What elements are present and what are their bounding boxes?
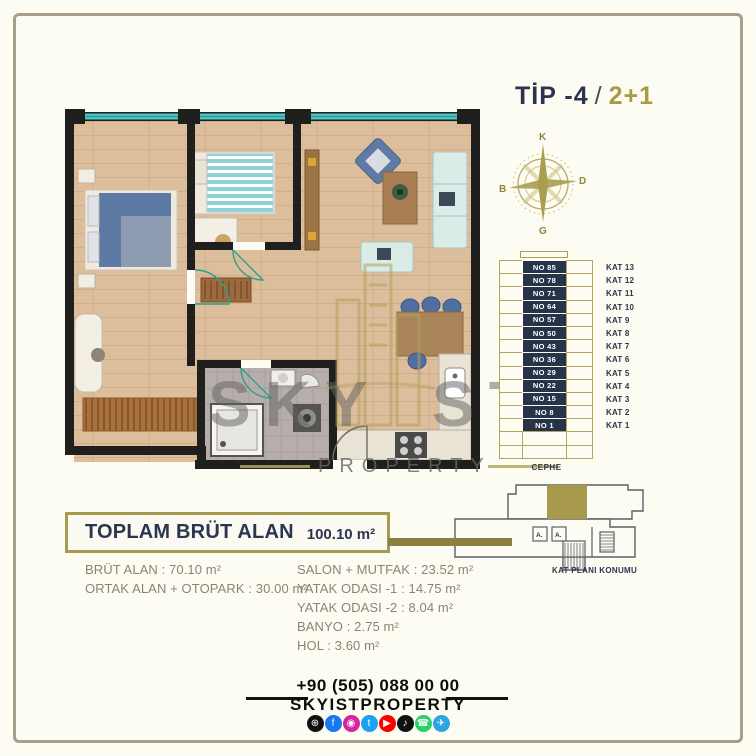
stack-cell-left (499, 405, 523, 419)
unit-type-title: TİP -4/2+1 (515, 82, 654, 111)
sink (445, 368, 465, 398)
floor-level-label: KAT 4 (606, 380, 651, 393)
stack-cell-right (566, 418, 593, 432)
floor-level-label: KAT 13 (606, 261, 651, 274)
stack-cell-left (499, 326, 523, 340)
stack-cell-left (499, 392, 523, 406)
building-stack-rows: NO 85 KAT 13 NO 78 KAT 12 NO 71 KAT 11 (499, 261, 594, 432)
flat-number-badge: NO 29 (522, 366, 567, 380)
stack-cell-right (566, 313, 593, 327)
stack-cell-left (499, 418, 523, 432)
twitter-icon: t (361, 715, 378, 732)
nightstand (78, 274, 95, 288)
chair (422, 297, 440, 313)
stack-cell-right (566, 405, 593, 419)
floor-location-plan: A. A. (452, 478, 647, 572)
area-line: YATAK ODASI -1 : 14.75 m² (297, 579, 473, 598)
flat-number-badge: NO 43 (522, 339, 567, 353)
stack-cell-left (499, 352, 523, 366)
title-separator: / (595, 82, 603, 110)
compass-south-label: G (539, 226, 547, 236)
floor-plan (65, 108, 480, 478)
floor-level-label: KAT 12 (606, 274, 651, 287)
stack-cell-left (499, 300, 523, 314)
building-roof-cap (520, 251, 568, 258)
stool (91, 348, 105, 362)
stack-cell-left (499, 379, 523, 393)
flat-number-badge: NO 22 (522, 379, 567, 393)
nightstand (78, 169, 95, 183)
stack-cell-right (566, 300, 593, 314)
tiktok-icon: ♪ (397, 715, 414, 732)
chair (408, 353, 426, 369)
compass-rose-icon: K D B G (497, 128, 589, 236)
floor-level-label: KAT 10 (606, 301, 651, 314)
whatsapp-icon: ☎ (415, 715, 432, 732)
pillow (194, 160, 207, 184)
building-stack: NO 85 KAT 13 NO 78 KAT 12 NO 71 KAT 11 (499, 251, 649, 459)
floor-level-label: KAT 11 (606, 287, 651, 300)
compass-east-label: D (579, 176, 586, 187)
gross-area-title: TOPLAM BRÜT ALAN (85, 521, 294, 544)
flat-number-badge: NO 50 (522, 326, 567, 340)
instagram-icon: ◉ (343, 715, 360, 732)
compass-north-label: K (539, 132, 547, 143)
building-stack-base (499, 432, 594, 458)
stack-cell-right (566, 339, 593, 353)
social-icons-row: ⊕ f ◉ t ▶ ♪ ☎ ✈ (0, 715, 756, 732)
area-summary-right: SALON + MUTFAK : 23.52 m²YATAK ODASI -1 … (297, 560, 473, 655)
stack-cell-left (499, 273, 523, 287)
plan-label: 2+1 (609, 82, 654, 110)
area-line: SALON + MUTFAK : 23.52 m² (297, 560, 473, 579)
stack-cell-left (499, 286, 523, 300)
youtube-icon: ▶ (379, 715, 396, 732)
gold-divider-band (388, 538, 512, 546)
facebook-icon: f (325, 715, 342, 732)
compass-west-label: B (499, 184, 506, 195)
floor-level-label: KAT 7 (606, 340, 651, 353)
flat-number-badge: NO 57 (522, 313, 567, 327)
telegram-icon: ✈ (433, 715, 450, 732)
bed-blanket (121, 216, 171, 267)
area-summary-left: BRÜT ALAN : 70.10 m²ORTAK ALAN + OTOPARK… (85, 560, 308, 598)
floor-level-label: KAT 3 (606, 393, 651, 406)
area-line: ORTAK ALAN + OTOPARK : 30.00 m² (85, 579, 308, 598)
floor-level-label: KAT 8 (606, 327, 651, 340)
phone-number: +90 (505) 088 00 00 (0, 676, 756, 696)
type-label: TİP -4 (515, 82, 589, 110)
area-line: HOL : 3.60 m² (297, 636, 473, 655)
flat-number-badge: NO 1 (522, 418, 567, 432)
flat-number-badge: NO 71 (522, 286, 567, 300)
flat-number-badge: NO 36 (522, 352, 567, 366)
floor-level-label: KAT 9 (606, 314, 651, 327)
stack-cell-left (499, 313, 523, 327)
flat-number-badge: NO 64 (522, 300, 567, 314)
floor-level-label: KAT 2 (606, 406, 651, 419)
stack-cell-left (499, 366, 523, 380)
area-line: YATAK ODASI -2 : 8.04 m² (297, 598, 473, 617)
area-line: BANYO : 2.75 m² (297, 617, 473, 636)
stack-cell-right (566, 392, 593, 406)
floor-level-label: KAT 5 (606, 367, 651, 380)
stack-cell-right (566, 366, 593, 380)
single-bed (207, 154, 273, 212)
website-icon: ⊕ (307, 715, 324, 732)
flyer-canvas: TİP -4/2+1 K D B G (0, 0, 756, 756)
stack-cell-right (566, 379, 593, 393)
stack-cell-left (499, 339, 523, 353)
area-line: BRÜT ALAN : 70.10 m² (85, 560, 308, 579)
stack-cell-right (566, 286, 593, 300)
elevator-label: A. (536, 532, 543, 539)
flat-number-badge: NO 8 (522, 405, 567, 419)
sofa-pillow (439, 192, 455, 206)
floor-level-label: KAT 6 (606, 353, 651, 366)
dining-table (397, 312, 463, 356)
unit-location-highlight (547, 485, 587, 519)
stack-cell-right (566, 326, 593, 340)
flat-number-badge: NO 15 (522, 392, 567, 406)
stack-cell-right (566, 352, 593, 366)
flat-number-badge: NO 78 (522, 273, 567, 287)
elevator-label: A. (555, 532, 562, 539)
stove (395, 432, 427, 458)
stack-cell-left (499, 260, 523, 274)
pillow (88, 196, 99, 226)
floor-level-label: KAT 1 (606, 419, 651, 432)
rug (83, 398, 197, 431)
stack-cell-right (566, 260, 593, 274)
gross-area-value: 100.10 m² (307, 526, 375, 543)
stack-cell-right (566, 273, 593, 287)
pillow (88, 232, 99, 262)
flat-number-badge: NO 85 (522, 260, 567, 274)
brand-name: SKYISTPROPERTY (0, 695, 756, 715)
cephe-label: CEPHE (499, 463, 594, 472)
location-plan-label: KAT PLANI KONUMU (552, 566, 637, 575)
gross-area-box: TOPLAM BRÜT ALAN 100.10 m² (65, 512, 390, 553)
